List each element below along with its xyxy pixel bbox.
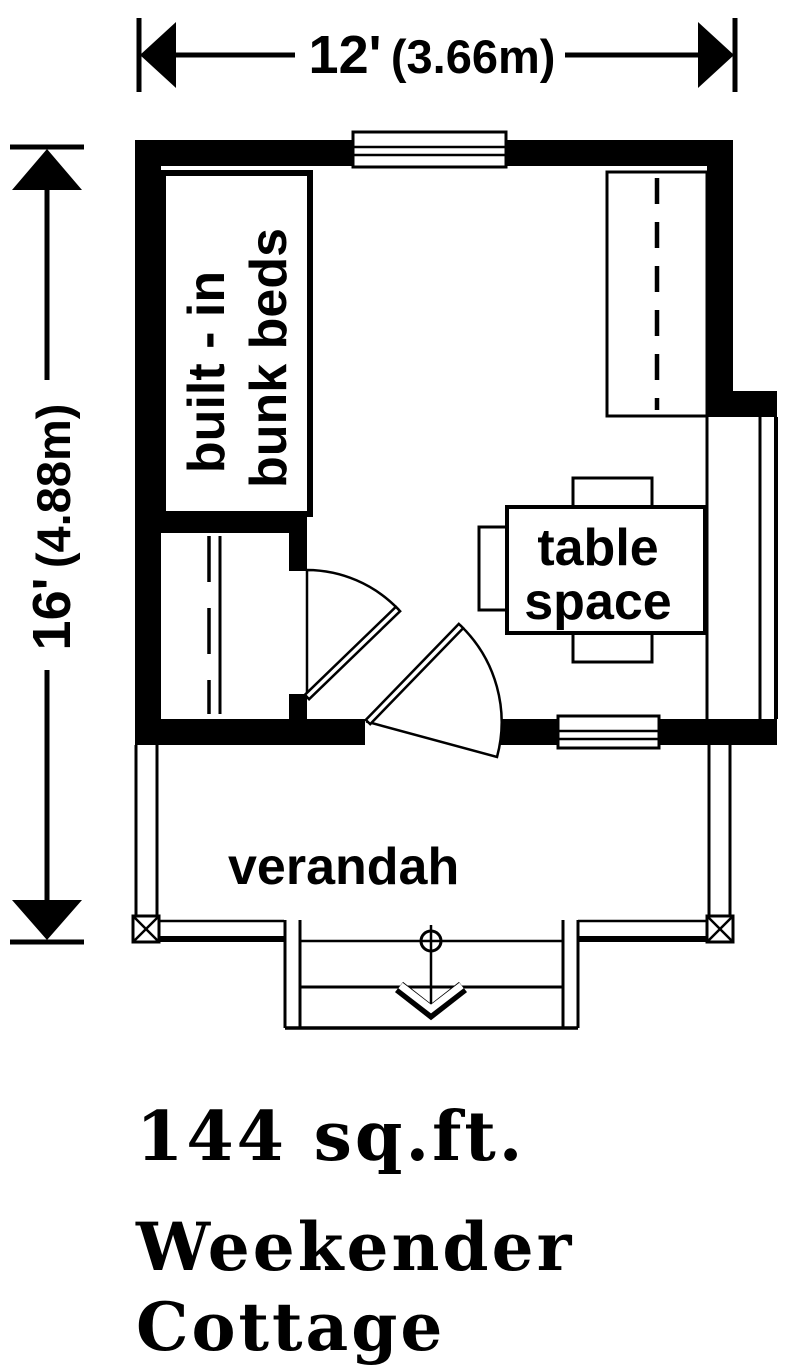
wall-interior-jamb-bottom <box>289 694 307 719</box>
top-window <box>353 132 506 167</box>
dim-arrow-right-icon <box>698 22 734 88</box>
wall-bottom-right <box>657 719 777 745</box>
plan-title-line2: Cottage <box>136 1288 445 1365</box>
closet <box>607 172 707 416</box>
interior-door <box>305 570 400 699</box>
bunk-label-line1: built - in <box>178 271 236 473</box>
wall-bottom-left <box>135 719 365 745</box>
chair-top <box>573 478 652 507</box>
area-label: 144 sq.ft. <box>136 1097 525 1177</box>
wall-right-upper <box>707 140 733 417</box>
entry-door-swing-arc <box>368 626 502 757</box>
entry-marker <box>399 925 463 1012</box>
width-dimension-label: 12' (3.66m) <box>309 25 556 85</box>
wardrobe-lines <box>209 536 220 714</box>
bunk-label-line2: bunk beds <box>240 228 298 488</box>
wall-interior-jamb-top <box>289 533 307 571</box>
dim-arrow-left-icon <box>140 22 176 88</box>
chair-bottom <box>573 633 652 662</box>
wall-bottom-mid <box>499 719 560 745</box>
wall-left <box>135 140 161 745</box>
table-label-line2: space <box>524 573 671 631</box>
bottom-window <box>558 716 659 748</box>
post-right <box>707 916 733 942</box>
floor-plan-drawing: 12' (3.66m) 16' (4.88m) built - in <box>0 0 800 1365</box>
chair-left <box>479 527 507 610</box>
post-left <box>133 916 159 942</box>
dim-arrow-up-icon <box>12 149 82 190</box>
height-dimension-label: 16' (4.88m) <box>22 404 82 651</box>
bay-window <box>707 417 776 719</box>
verandah-label: verandah <box>228 838 459 896</box>
entry-door <box>366 624 502 757</box>
floor-plan-page: 12' (3.66m) 16' (4.88m) built - in <box>0 0 800 1365</box>
table-label-line1: table <box>537 519 658 577</box>
dim-arrow-down-icon <box>12 900 82 940</box>
plan-title-line1: Weekender <box>135 1208 574 1286</box>
wall-bay-shoulder <box>707 391 777 417</box>
